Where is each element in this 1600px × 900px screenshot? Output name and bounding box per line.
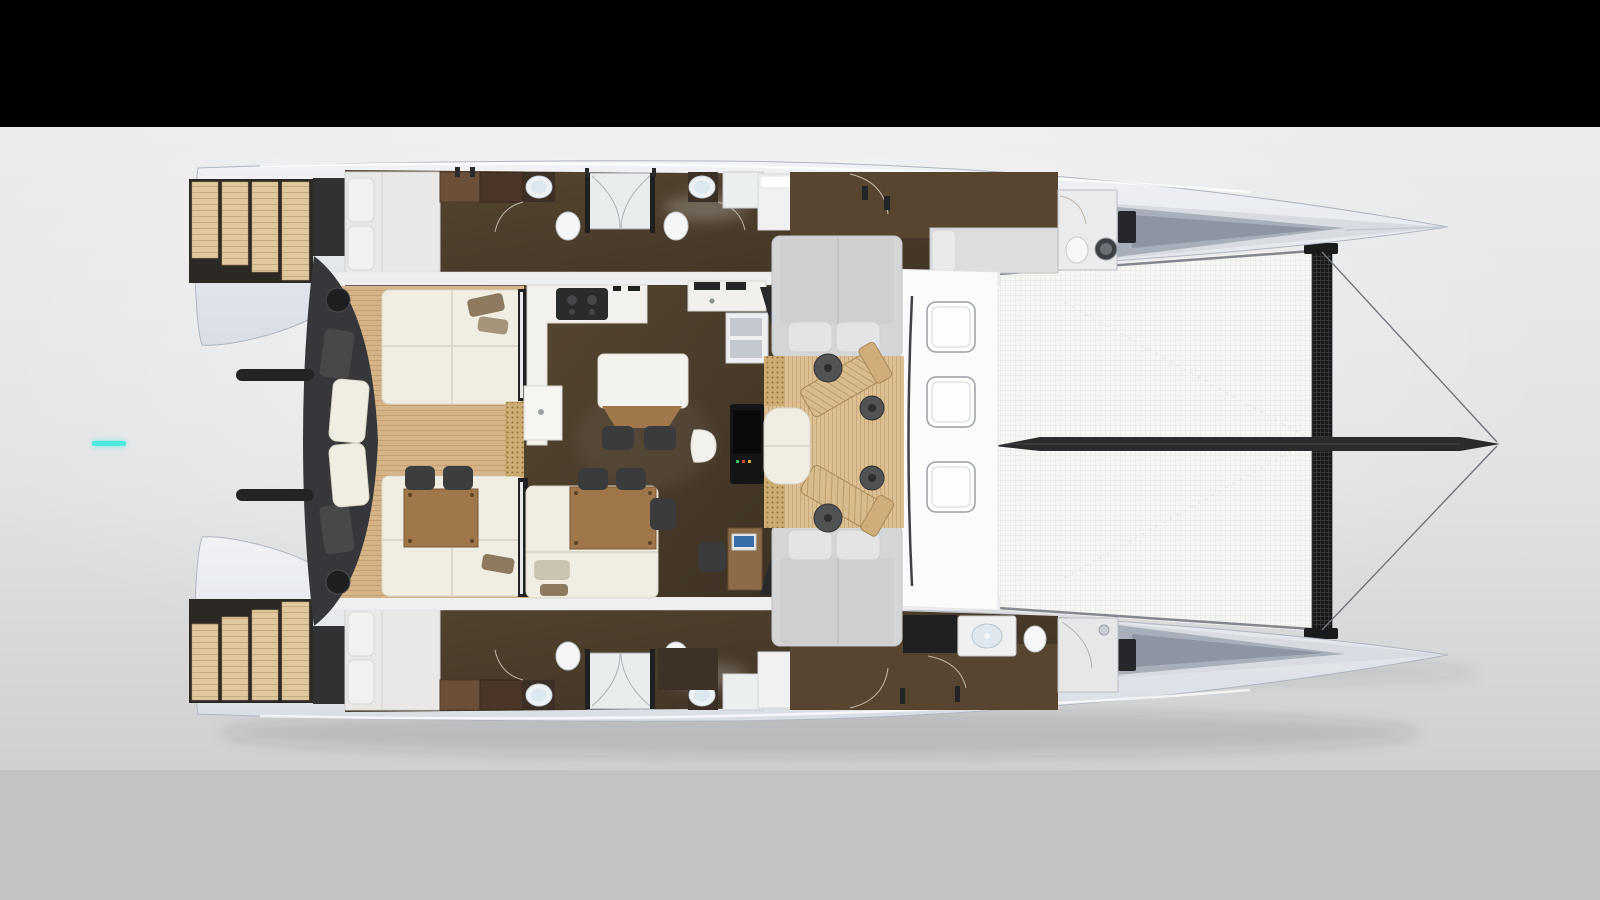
transom-cushion [328, 379, 369, 444]
desk-chair [698, 542, 726, 572]
dining-chair [644, 426, 676, 450]
port-windlass [1118, 211, 1136, 243]
port-stern-locker [313, 178, 345, 256]
stbd-stern-steps [189, 599, 313, 703]
deck-fitting [455, 167, 460, 177]
toilet-icon [556, 642, 580, 670]
cockpit-sofa-top [382, 290, 522, 404]
port-aft-berth [345, 172, 440, 278]
stbd-corridor [790, 644, 1058, 710]
rattan-mat [506, 402, 524, 476]
deck-fitting [652, 168, 656, 177]
salon-chair [616, 468, 646, 490]
rattan-mat [764, 478, 784, 528]
cyan-progress-indicator[interactable] [92, 441, 126, 446]
wall-post [900, 688, 905, 704]
deck-hatch [927, 302, 975, 352]
wall-post [862, 186, 868, 200]
toilet-icon [1066, 237, 1088, 263]
deck-fitting [470, 167, 475, 177]
pillow [788, 530, 832, 560]
davit-arm [236, 369, 314, 381]
cooktop [556, 288, 608, 320]
deck-hatch [927, 377, 975, 427]
stbd-vanity-cabinets [723, 674, 763, 710]
salon-chair [578, 468, 608, 490]
toilet-icon [1024, 626, 1046, 652]
stbd-bow-shower [1058, 618, 1118, 692]
salon-chair [650, 498, 676, 530]
foredeck [764, 236, 998, 646]
speaker-icon [326, 288, 350, 312]
fwd-daybed-top [772, 236, 902, 358]
port-bow-bathroom [1058, 190, 1117, 270]
salon-table [570, 487, 656, 549]
bottom-ui-strip [0, 770, 1600, 900]
stbd-wardrobe [440, 680, 480, 710]
bridgedeck [236, 236, 1000, 646]
stbd-stern-locker [313, 626, 345, 704]
forward-cockpit [764, 341, 904, 538]
letterbox-top-bar [0, 0, 1600, 127]
port-stern-steps [189, 179, 313, 283]
toilet-icon [664, 212, 688, 240]
speaker-icon [326, 570, 350, 594]
screenshot-stage [0, 0, 1600, 900]
port-cabinet-dark [480, 172, 523, 202]
dining-table [598, 354, 688, 408]
salon-sofa-group [526, 468, 676, 598]
toilet-icon [556, 212, 580, 240]
stbd-closet [658, 648, 718, 690]
cockpit-chair [405, 466, 435, 490]
cockpit-chair [443, 466, 473, 490]
port-bow-berth [930, 228, 1058, 273]
stbd-windlass [1118, 639, 1136, 671]
dining-chair [602, 426, 634, 450]
rattan-mat [764, 356, 784, 406]
port-vanity-cabinets [723, 172, 763, 208]
fwd-daybed-bottom [772, 524, 902, 646]
deck-hatch [927, 462, 975, 512]
stbd-aft-berth [345, 604, 440, 710]
stbd-cabinet-dark [480, 680, 523, 710]
port-shower [585, 173, 655, 233]
cockpit-table [404, 489, 478, 547]
wall-post [884, 196, 890, 210]
deck-hatches [927, 302, 975, 512]
pillow [788, 322, 832, 352]
salon [518, 281, 792, 598]
davit-arm [236, 489, 314, 501]
deck-fitting [585, 168, 589, 177]
catamaran-floorplan [0, 0, 1600, 900]
transom-cushion [328, 443, 369, 508]
stbd-shower [585, 649, 655, 709]
helm-pod-seat [691, 430, 716, 462]
trampoline-group [994, 243, 1500, 639]
dining-table-wood [602, 406, 682, 428]
wall-post [955, 686, 960, 702]
